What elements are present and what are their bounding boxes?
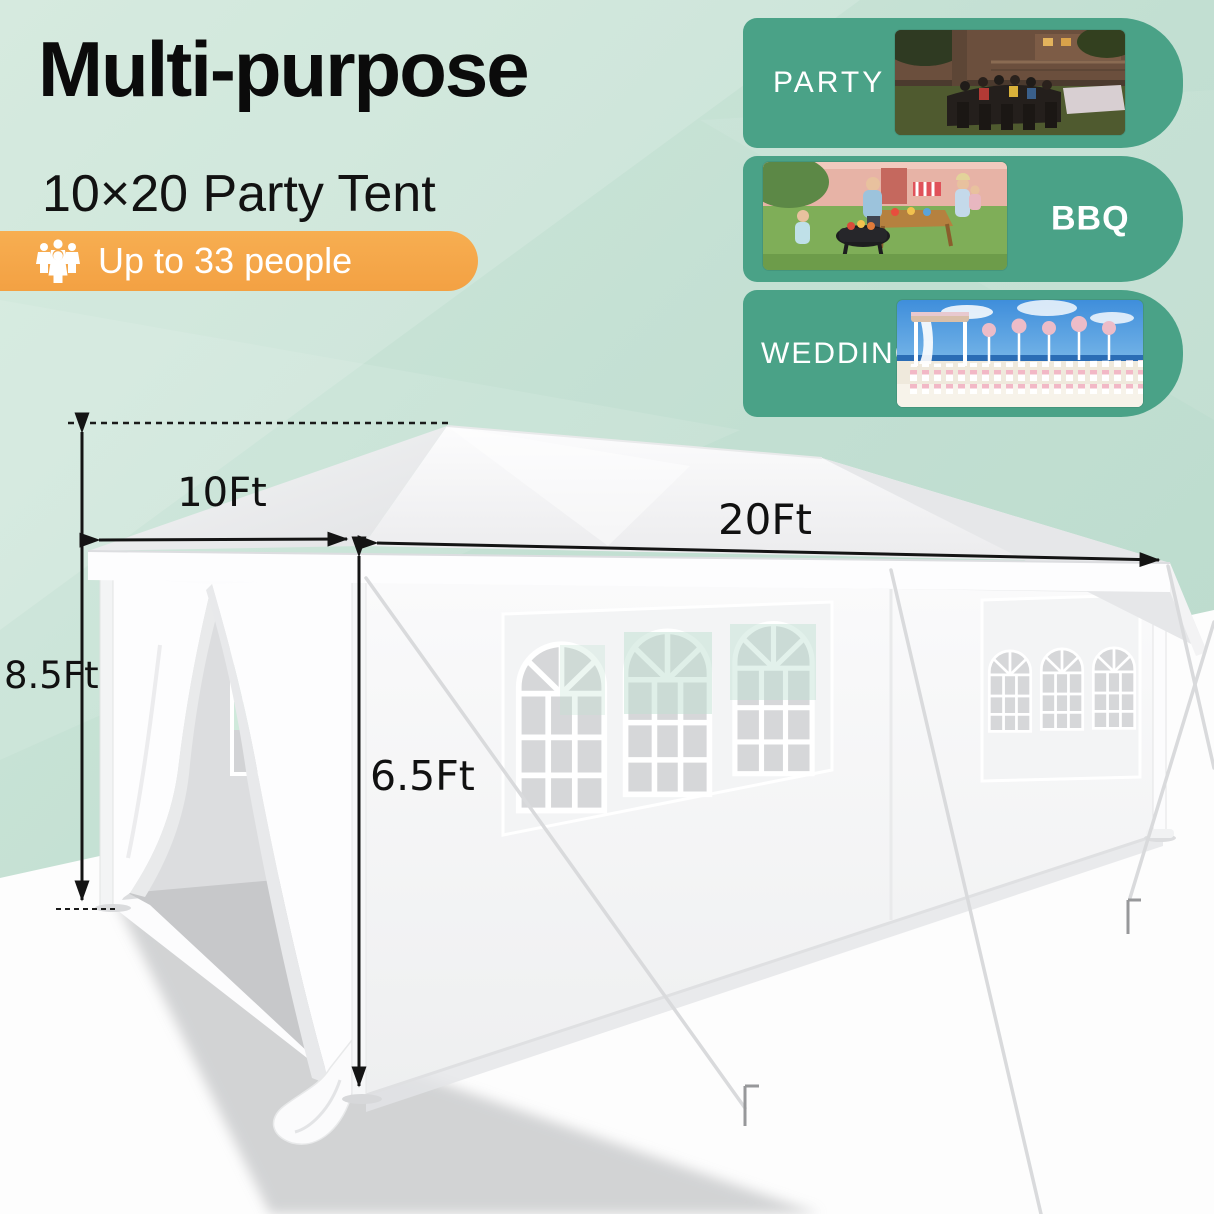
party-photo <box>895 30 1125 135</box>
wedding-photo <box>897 300 1143 407</box>
bbq-photo <box>763 162 1007 270</box>
eave-height-label: 6.5Ft <box>370 752 475 800</box>
capacity-badge: Up to 33 people <box>0 231 478 291</box>
front-width-label: 10Ft <box>177 470 267 516</box>
use-case-card-party: PARTY <box>743 18 1183 148</box>
use-case-label: PARTY <box>773 66 885 100</box>
use-case-card-wedding: WEDDING <box>743 290 1183 417</box>
page-title: Multi-purpose <box>38 24 528 115</box>
arched-window <box>989 651 1030 732</box>
arched-window <box>1093 648 1134 729</box>
use-case-label: BBQ <box>1051 200 1130 239</box>
use-case-card-bbq: BBQ <box>743 156 1183 282</box>
capacity-badge-label: Up to 33 people <box>98 240 352 282</box>
window-band-back <box>982 595 1140 781</box>
peak-height-label: 8.5Ft <box>4 654 99 697</box>
length-label: 20Ft <box>718 495 812 544</box>
arched-window <box>1041 649 1082 730</box>
people-group-icon <box>34 239 82 283</box>
product-infographic: 10Ft 20Ft 8.5Ft 6.5Ft Multi-purpose 10×2… <box>0 0 1214 1214</box>
front-width-arrow <box>99 539 347 540</box>
page-subtitle: 10×20 Party Tent <box>42 164 436 224</box>
